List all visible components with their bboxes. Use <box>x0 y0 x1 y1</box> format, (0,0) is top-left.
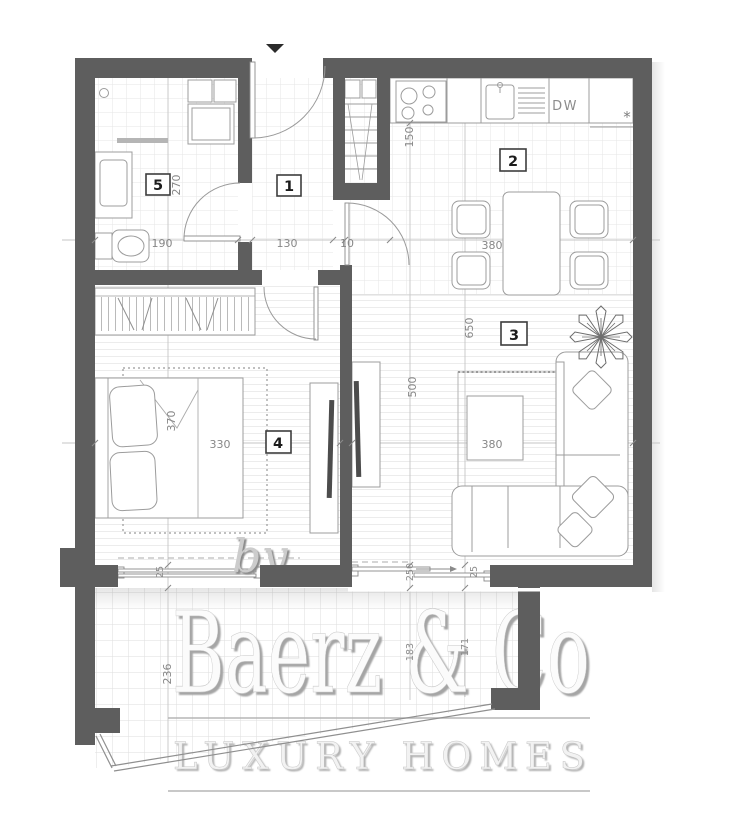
vanity-sink <box>95 152 132 218</box>
room-number-1: 1 <box>277 175 301 196</box>
tv-unit-bedroom <box>310 383 338 533</box>
room-number-2: 2 <box>500 149 526 171</box>
dim-bed-width: 330 <box>210 438 231 451</box>
washing-machine <box>188 80 236 144</box>
slide-direction-arrow-icon <box>450 566 457 572</box>
dining-chair <box>570 252 608 289</box>
room-number-5: 5 <box>146 174 170 195</box>
dim-bathroom-depth: 270 <box>170 175 183 196</box>
dim-terrace-door-gap: 25 <box>469 566 480 578</box>
dining-table <box>503 192 560 295</box>
counter-asterisk: * <box>623 108 631 126</box>
bathroom-shelf <box>117 138 168 143</box>
room-label: 5 <box>153 178 163 194</box>
terrace-wall-right-foot <box>491 688 540 710</box>
kitchen-counter <box>390 78 633 127</box>
balcony-slab-line <box>348 588 652 592</box>
room-label: 1 <box>284 179 294 195</box>
floor-plan: by by Baerz & Co Baerz & Co LUXURY HOMES… <box>0 0 753 826</box>
dim-living-width: 380 <box>482 438 503 451</box>
entrance-arrow-icon <box>266 44 284 53</box>
dim-wall-thickness: 10 <box>340 237 354 250</box>
dim-hallway-width: 130 <box>277 237 298 250</box>
building-shadow <box>652 62 665 592</box>
dim-bed-length: 370 <box>165 411 178 432</box>
room-number-3: 3 <box>501 322 527 345</box>
terrace-wall-left-foot <box>93 708 120 733</box>
dishwasher-label: DW <box>552 99 578 114</box>
dim-bedroom-window: 25 <box>155 566 166 578</box>
bed-pillow <box>109 384 158 447</box>
dim-living-length: 650 <box>463 318 476 339</box>
dining-chair <box>570 201 608 238</box>
room-label: 2 <box>508 154 518 170</box>
dim-kitchen-counter: 150 <box>403 127 416 148</box>
wardrobe <box>95 288 255 335</box>
dim-terrace-door-width: 250 <box>405 563 416 581</box>
room-label: 4 <box>273 436 283 452</box>
dim-terrace-depth-right: 171 <box>460 638 471 656</box>
terrace-wall-left <box>75 587 95 745</box>
dim-bathroom-width: 190 <box>152 237 173 250</box>
tv-unit-living <box>352 362 380 487</box>
dim-partition-length: 500 <box>406 377 419 398</box>
room-number-4: 4 <box>266 431 291 453</box>
dining-chair <box>452 201 490 238</box>
dining-chair <box>452 252 490 289</box>
dim-terrace-depth-left: 183 <box>405 643 416 661</box>
bed-pillow <box>110 451 158 511</box>
room-label: 3 <box>509 328 519 344</box>
toilet <box>95 230 149 262</box>
dim-dining-width: 380 <box>482 239 503 252</box>
dim-terrace-height: 236 <box>161 664 174 685</box>
floor-plan-page: by by Baerz & Co Baerz & Co LUXURY HOMES… <box>0 0 753 826</box>
